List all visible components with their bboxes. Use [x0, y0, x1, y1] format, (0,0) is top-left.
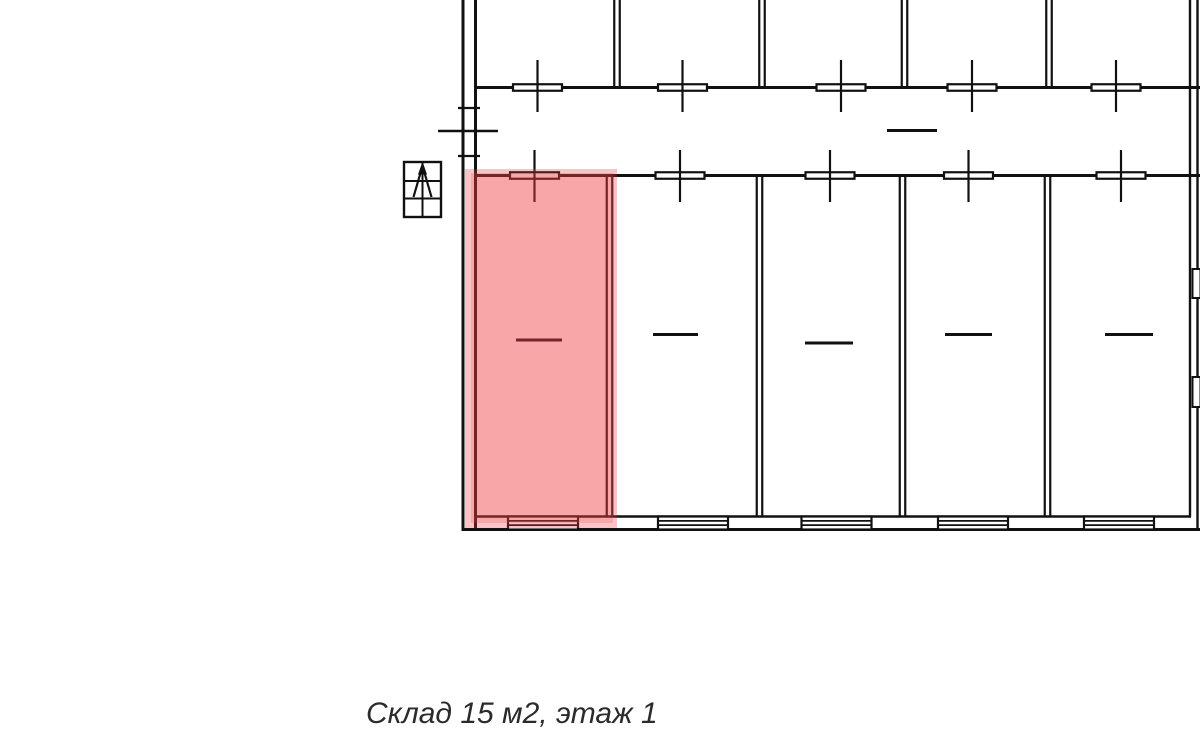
selected-unit-highlight[interactable]	[465, 169, 617, 528]
floor-plan	[0, 0, 1200, 745]
corridor-entrance-door	[438, 108, 498, 156]
plan-caption: Склад 15 м2, этаж 1	[366, 697, 658, 731]
floor-plan-page: Склад 15 м2, этаж 1	[0, 0, 1200, 745]
stairs-icon	[404, 162, 441, 218]
right-wall-openings	[1193, 269, 1200, 407]
highlight-fill[interactable]	[471, 173, 613, 523]
